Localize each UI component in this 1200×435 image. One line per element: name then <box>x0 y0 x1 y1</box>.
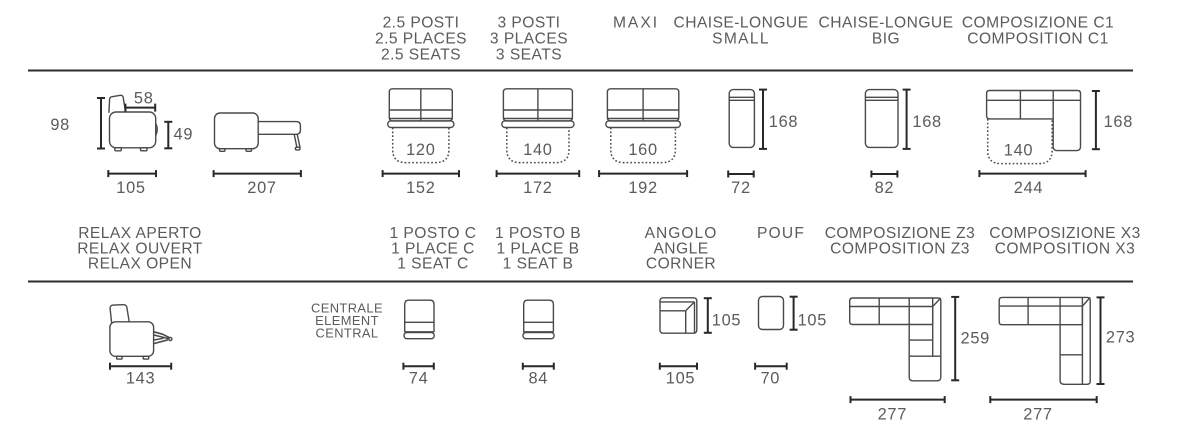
svg-text:POUF: POUF <box>757 225 805 242</box>
svg-text:RELAX APERTO: RELAX APERTO <box>78 225 202 242</box>
svg-text:COMPOSITION C1: COMPOSITION C1 <box>967 31 1108 48</box>
svg-text:COMPOSIZIONE X3: COMPOSIZIONE X3 <box>989 225 1140 242</box>
svg-text:120: 120 <box>406 141 435 159</box>
svg-text:84: 84 <box>528 370 548 388</box>
svg-text:168: 168 <box>912 113 941 131</box>
svg-text:244: 244 <box>1014 179 1043 197</box>
svg-text:192: 192 <box>628 179 657 197</box>
svg-text:1 SEAT B: 1 SEAT B <box>503 256 574 273</box>
svg-text:70: 70 <box>760 370 780 388</box>
svg-text:168: 168 <box>769 113 798 131</box>
svg-text:2.5 PLACES: 2.5 PLACES <box>375 31 467 48</box>
svg-text:49: 49 <box>174 126 194 144</box>
svg-text:1 POSTO C: 1 POSTO C <box>390 225 477 242</box>
svg-text:277: 277 <box>1023 406 1052 424</box>
svg-text:2.5 POSTI: 2.5 POSTI <box>383 15 460 32</box>
svg-text:CENTRAL: CENTRAL <box>316 326 379 341</box>
svg-text:COMPOSIZIONE Z3: COMPOSIZIONE Z3 <box>825 225 976 242</box>
svg-text:CHAISE-LONGUE: CHAISE-LONGUE <box>819 15 954 32</box>
svg-text:277: 277 <box>878 406 907 424</box>
svg-text:273: 273 <box>1106 329 1135 347</box>
svg-text:3 SEATS: 3 SEATS <box>496 47 562 64</box>
svg-text:COMPOSITION X3: COMPOSITION X3 <box>995 241 1136 258</box>
svg-text:MAXI: MAXI <box>613 15 659 32</box>
svg-text:82: 82 <box>875 179 895 197</box>
svg-text:140: 140 <box>1004 141 1033 159</box>
svg-text:CHAISE-LONGUE: CHAISE-LONGUE <box>674 15 809 32</box>
svg-text:CORNER: CORNER <box>646 256 716 273</box>
svg-text:152: 152 <box>406 179 435 197</box>
svg-text:105: 105 <box>712 311 741 329</box>
svg-text:259: 259 <box>961 330 990 348</box>
svg-text:1 SEAT C: 1 SEAT C <box>397 256 469 273</box>
svg-text:72: 72 <box>731 179 751 197</box>
svg-text:105: 105 <box>666 370 695 388</box>
svg-text:74: 74 <box>409 370 429 388</box>
svg-text:SMALL: SMALL <box>712 31 770 48</box>
svg-text:COMPOSITION Z3: COMPOSITION Z3 <box>830 241 970 258</box>
svg-text:140: 140 <box>523 141 552 159</box>
svg-text:105: 105 <box>116 179 145 197</box>
svg-text:160: 160 <box>628 141 657 159</box>
svg-text:168: 168 <box>1104 113 1133 131</box>
svg-text:143: 143 <box>126 370 155 388</box>
svg-text:105: 105 <box>798 311 827 329</box>
svg-text:58: 58 <box>134 90 154 108</box>
svg-text:COMPOSIZIONE C1: COMPOSIZIONE C1 <box>962 15 1114 32</box>
svg-text:RELAX OPEN: RELAX OPEN <box>88 256 192 273</box>
svg-text:2.5 SEATS: 2.5 SEATS <box>381 47 461 64</box>
svg-text:ANGOLO: ANGOLO <box>645 225 718 242</box>
svg-text:172: 172 <box>523 179 552 197</box>
svg-text:3 PLACES: 3 PLACES <box>490 31 568 48</box>
svg-text:BIG: BIG <box>872 31 900 48</box>
svg-text:207: 207 <box>247 179 276 197</box>
svg-text:1 POSTO B: 1 POSTO B <box>495 225 581 242</box>
svg-text:98: 98 <box>50 116 70 134</box>
svg-text:3 POSTI: 3 POSTI <box>498 15 561 32</box>
